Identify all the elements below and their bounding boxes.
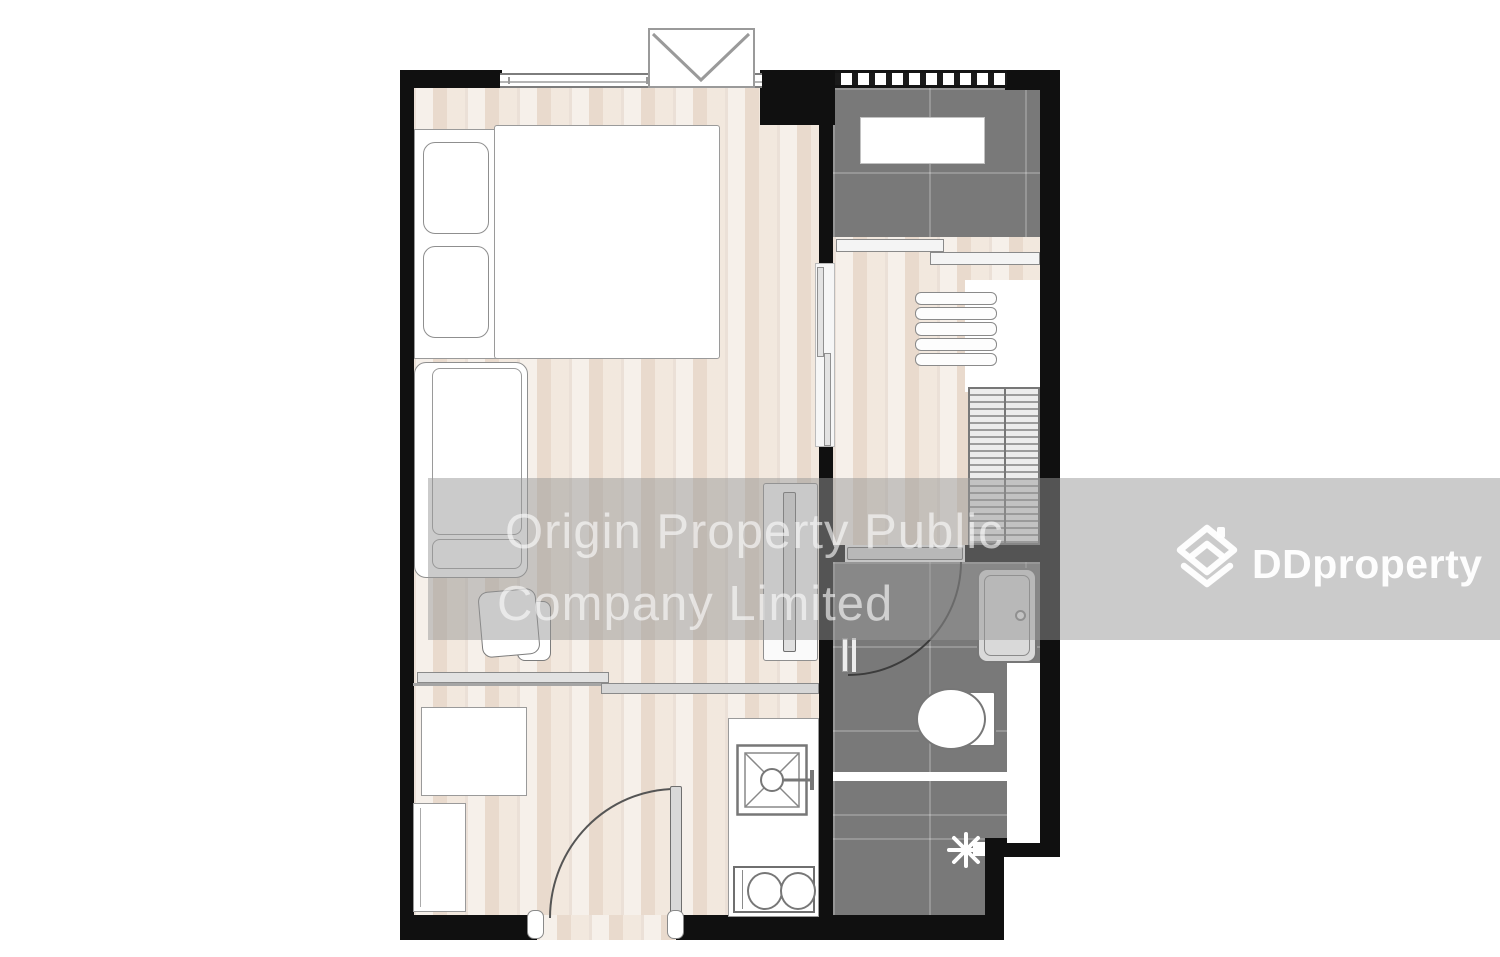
balcony-sliding-door-panel bbox=[836, 239, 944, 252]
closet-shelf-stack bbox=[915, 292, 997, 366]
floor-plan-page: Origin Property Public Company Limited D… bbox=[0, 0, 1500, 957]
stove-control-strip bbox=[737, 870, 743, 909]
entrance-door-leaf bbox=[670, 786, 682, 918]
fridge-cabinet bbox=[413, 803, 466, 912]
balcony-sliding-door-panel bbox=[930, 252, 1040, 265]
pillow bbox=[423, 142, 489, 234]
stove-burner bbox=[747, 872, 783, 910]
partition-panel bbox=[417, 672, 609, 683]
kitchen-sink bbox=[736, 744, 822, 816]
bathroom-door-catch bbox=[842, 638, 848, 672]
partition-panel bbox=[601, 683, 819, 694]
wall-left bbox=[400, 70, 414, 940]
glass-door-strip bbox=[815, 263, 835, 447]
wall-top-bedroom bbox=[400, 70, 502, 88]
bathroom-door-catch bbox=[852, 638, 856, 672]
dining-table bbox=[421, 707, 527, 796]
entrance-door-post bbox=[667, 910, 684, 939]
shelf bbox=[915, 322, 997, 335]
wall-bottom-right bbox=[676, 915, 1004, 940]
toilet-bowl bbox=[916, 688, 986, 750]
pillow bbox=[423, 246, 489, 338]
shelf bbox=[915, 338, 997, 351]
house-chevron-icon bbox=[1172, 520, 1242, 592]
balcony-ac-unit bbox=[860, 117, 985, 164]
ac-condenser-unit bbox=[648, 28, 755, 88]
brand-name: DDproperty bbox=[1252, 544, 1483, 585]
balcony-railing bbox=[835, 70, 1007, 88]
wall-bottom-left bbox=[400, 915, 537, 940]
watermark-line1: Origin Property Public bbox=[505, 508, 1004, 557]
stove-burner bbox=[780, 872, 816, 910]
bed-mattress bbox=[494, 125, 720, 359]
wall-corner-column bbox=[760, 70, 835, 125]
shower-divider bbox=[833, 772, 1007, 781]
wall-bedroom-balcony bbox=[819, 123, 833, 265]
entrance-door-post bbox=[527, 910, 544, 939]
fridge-inner-line bbox=[420, 808, 421, 907]
ddproperty-logo: DDproperty bbox=[1172, 518, 1472, 598]
shelf bbox=[915, 307, 997, 320]
glass-door-panel bbox=[824, 353, 831, 446]
watermark-line2: Company Limited bbox=[497, 580, 893, 629]
floor-entry-threshold bbox=[537, 915, 676, 940]
window-mullion bbox=[508, 77, 510, 84]
shelf bbox=[915, 292, 997, 305]
glass-door-panel bbox=[817, 267, 824, 357]
bathroom-ledge bbox=[1007, 663, 1040, 843]
wall-right bbox=[1040, 70, 1060, 857]
condenser-vent-icon bbox=[650, 30, 753, 86]
shelf bbox=[915, 353, 997, 366]
stove bbox=[733, 866, 815, 913]
shower-head-icon bbox=[945, 830, 987, 870]
